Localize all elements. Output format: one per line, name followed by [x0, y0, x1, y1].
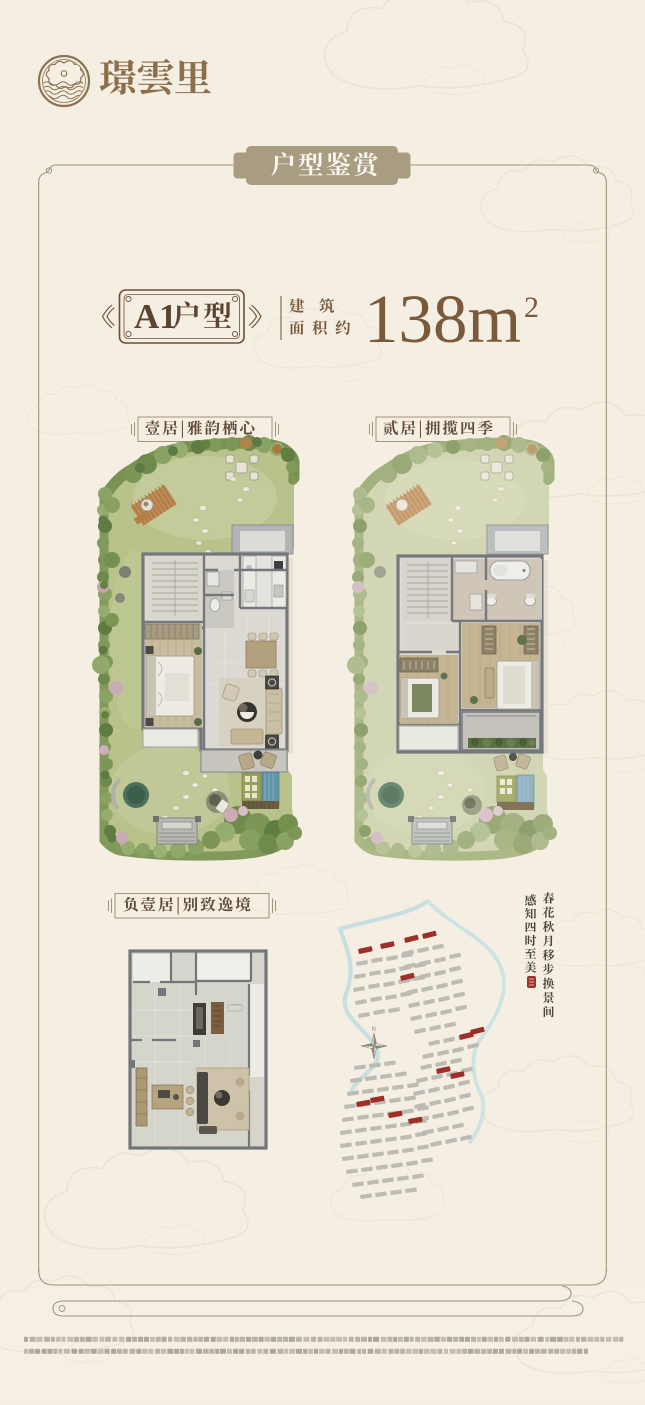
svg-text:2: 2 [524, 291, 539, 324]
svg-text:A1: A1 [134, 297, 177, 336]
svg-text:138m: 138m [364, 281, 521, 357]
svg-text:N: N [372, 1027, 376, 1033]
